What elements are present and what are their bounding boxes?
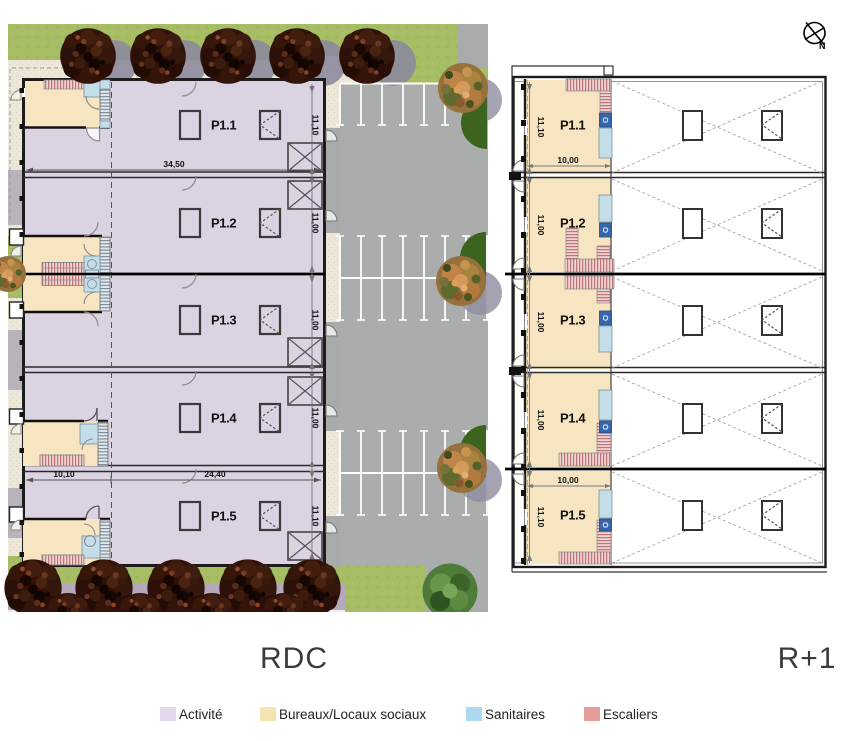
svg-text:10,10: 10,10 <box>53 469 75 479</box>
svg-text:11,10: 11,10 <box>536 507 546 528</box>
svg-text:11,10: 11,10 <box>536 117 546 138</box>
svg-text:Escaliers: Escaliers <box>603 707 658 722</box>
svg-text:11,00: 11,00 <box>536 215 546 236</box>
svg-text:P1.5: P1.5 <box>211 509 236 524</box>
svg-text:11,00: 11,00 <box>311 310 321 331</box>
svg-text:P1.1: P1.1 <box>211 118 236 133</box>
svg-text:P1.1: P1.1 <box>560 118 585 133</box>
svg-text:R+1: R+1 <box>778 642 837 675</box>
svg-text:P1.3: P1.3 <box>211 313 236 328</box>
svg-text:34,50: 34,50 <box>163 159 185 169</box>
svg-text:Bureaux/Locaux sociaux: Bureaux/Locaux sociaux <box>279 707 426 722</box>
svg-text:10,00: 10,00 <box>557 475 579 485</box>
svg-text:10,00: 10,00 <box>557 155 579 165</box>
svg-text:11,00: 11,00 <box>311 408 321 429</box>
svg-text:P1.4: P1.4 <box>560 411 586 426</box>
svg-text:P1.5: P1.5 <box>560 508 585 523</box>
svg-text:11,10: 11,10 <box>311 506 321 527</box>
svg-text:11,10: 11,10 <box>311 115 321 136</box>
svg-text:P1.4: P1.4 <box>211 411 237 426</box>
svg-text:Sanitaires: Sanitaires <box>485 707 545 722</box>
svg-text:11,00: 11,00 <box>311 213 321 234</box>
svg-text:11,00: 11,00 <box>536 312 546 333</box>
svg-text:Activité: Activité <box>179 707 223 722</box>
svg-text:N: N <box>819 41 826 51</box>
svg-text:P1.3: P1.3 <box>560 313 585 328</box>
svg-text:24,40: 24,40 <box>204 469 226 479</box>
svg-text:11,00: 11,00 <box>536 410 546 431</box>
svg-text:P1.2: P1.2 <box>211 216 236 231</box>
svg-text:RDC: RDC <box>260 642 328 675</box>
